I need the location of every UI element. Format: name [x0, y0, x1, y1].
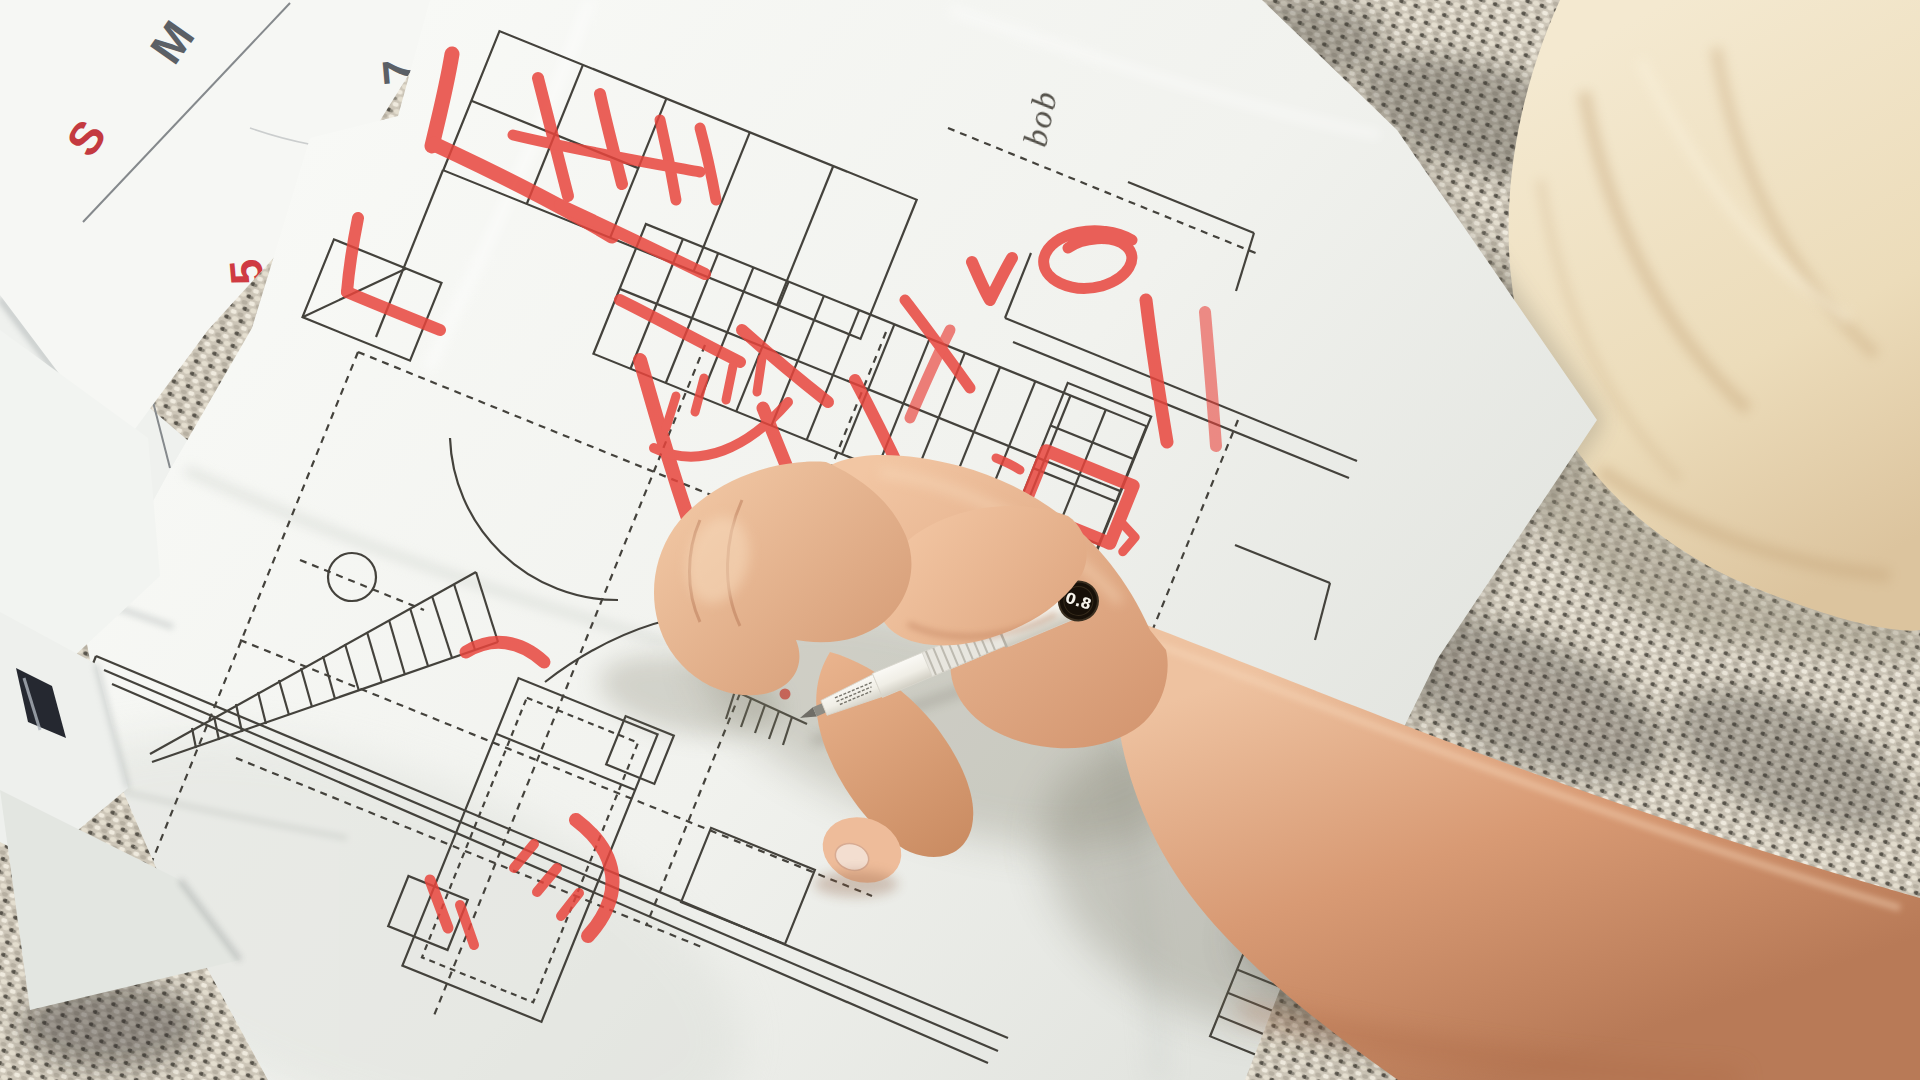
fingertip-shadow [814, 871, 898, 897]
photo-stage: 9 S M 7 6 5 [0, 0, 1920, 1080]
photo-scene: 9 S M 7 6 5 [0, 0, 1920, 1080]
